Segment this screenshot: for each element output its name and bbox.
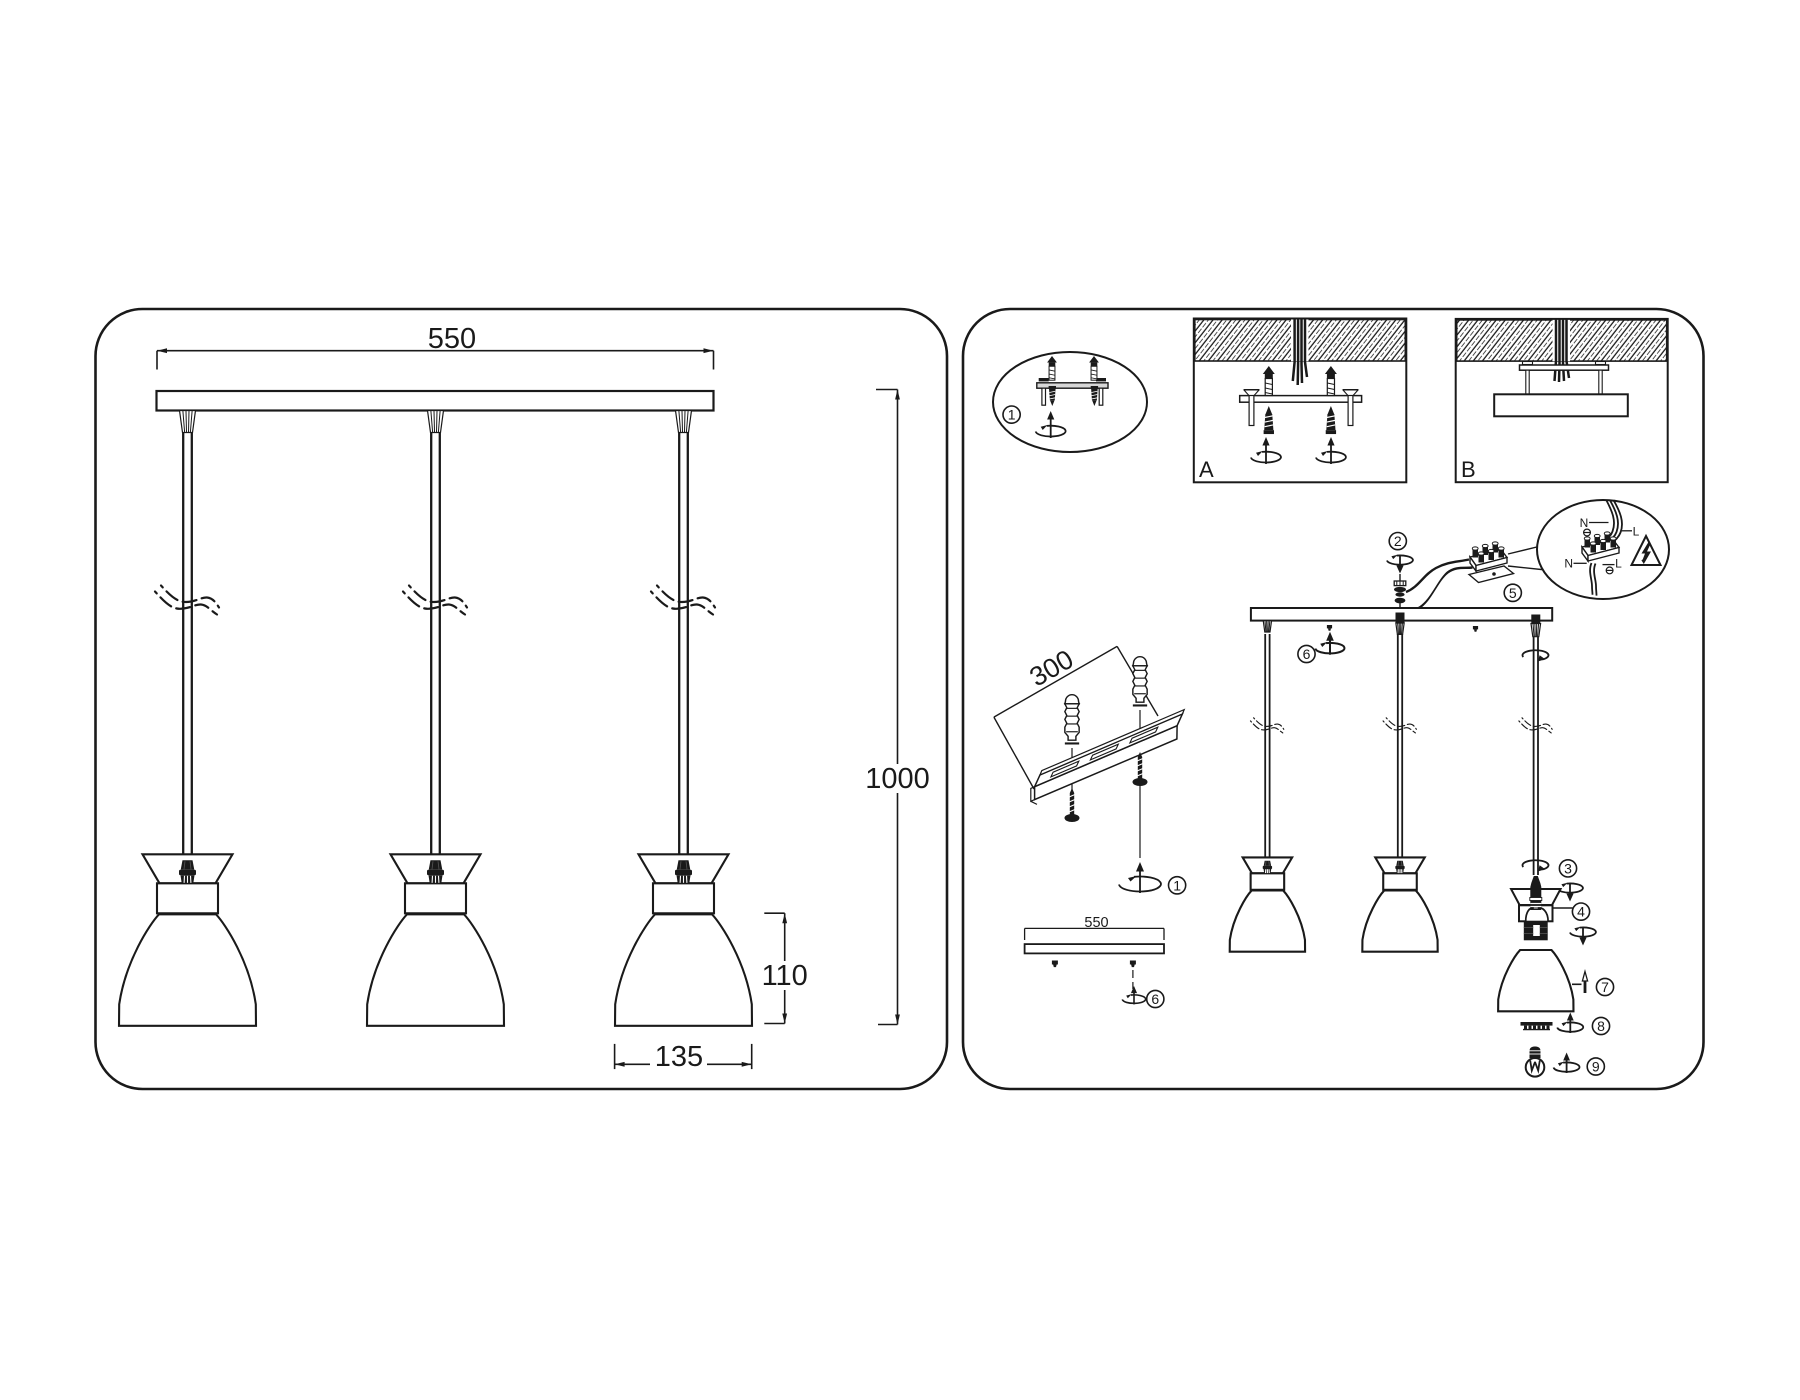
svg-text:550: 550: [428, 323, 476, 355]
svg-text:1000: 1000: [865, 763, 930, 795]
svg-text:A: A: [1199, 457, 1214, 482]
svg-text:6: 6: [1303, 646, 1311, 662]
svg-text:N: N: [1580, 516, 1589, 530]
svg-text:135: 135: [655, 1041, 703, 1073]
svg-text:B: B: [1461, 457, 1476, 482]
svg-text:4: 4: [1577, 904, 1585, 920]
svg-text:L: L: [1633, 525, 1640, 539]
svg-text:1: 1: [1008, 407, 1016, 423]
svg-text:5: 5: [1509, 585, 1517, 601]
svg-text:110: 110: [762, 960, 808, 992]
svg-text:2: 2: [1394, 533, 1402, 549]
svg-text:N: N: [1564, 557, 1573, 571]
svg-text:8: 8: [1597, 1018, 1605, 1034]
svg-text:9: 9: [1592, 1059, 1600, 1075]
svg-text:3: 3: [1564, 860, 1572, 876]
svg-text:L: L: [1615, 557, 1622, 571]
svg-text:6: 6: [1151, 991, 1159, 1007]
svg-text:1: 1: [1173, 877, 1181, 893]
svg-text:7: 7: [1601, 979, 1609, 995]
